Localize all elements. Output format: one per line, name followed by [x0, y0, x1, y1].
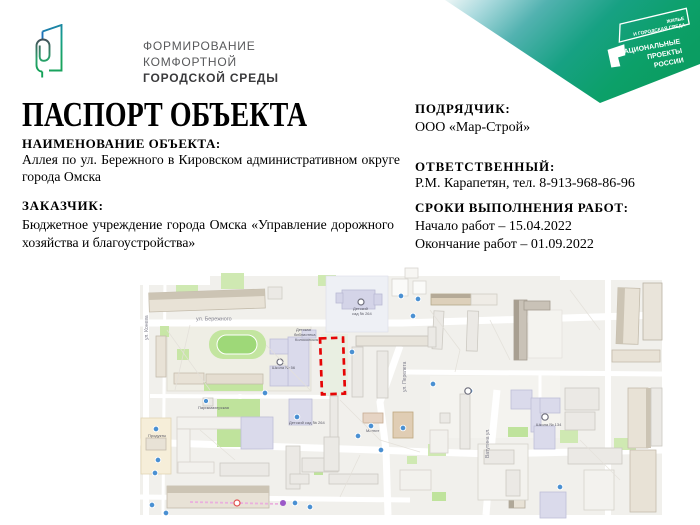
svg-text:Ватутина ул.: Ватутина ул. [485, 428, 491, 458]
svg-text:Детский сад № 264: Детский сад № 264 [289, 420, 325, 425]
svg-text:Продукты: Продукты [148, 433, 166, 438]
svg-text:сад № 264: сад № 264 [352, 311, 373, 316]
svg-text:Колокольчик: Колокольчик [295, 337, 318, 342]
svg-text:ул. Конева: ул. Конева [144, 315, 150, 340]
svg-text:Парикмахерская: Парикмахерская [198, 405, 229, 410]
svg-text:ул. Перелета: ул. Перелета [402, 361, 408, 392]
svg-text:Школа № 56: Школа № 56 [272, 365, 296, 370]
svg-text:Школа № 134: Школа № 134 [536, 422, 562, 427]
svg-text:ул. Бережного: ул. Бережного [196, 317, 232, 323]
